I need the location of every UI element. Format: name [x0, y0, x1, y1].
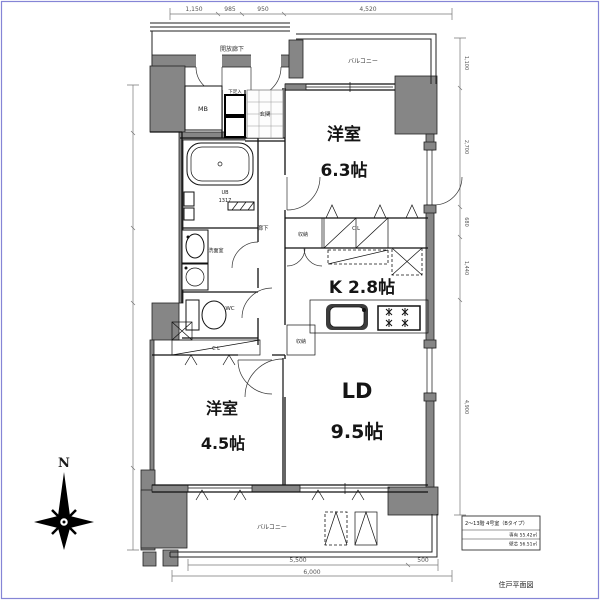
- dimension-line-bottom: 5,500 500 6,000: [172, 557, 452, 582]
- dim-right-4: 1,440: [463, 261, 469, 275]
- dim-top-2: 985: [224, 6, 236, 13]
- kitchen-label: K 2.8帖: [329, 277, 395, 298]
- storage-top-label: 収納: [298, 231, 308, 238]
- entry-door-gap: [251, 54, 281, 68]
- column-top-right: [395, 76, 437, 134]
- window-cap-1: [424, 142, 436, 150]
- window-cap-4: [424, 393, 436, 401]
- hallway: 廊下: [245, 224, 283, 397]
- bathtub: [187, 143, 253, 185]
- closet-top-label: C L: [352, 226, 360, 232]
- toilet-room: WC: [186, 288, 272, 330]
- block-se: [388, 487, 438, 515]
- room-west-top: 洋室 6.3帖: [287, 124, 418, 218]
- entrance-label: 玄関: [259, 110, 271, 118]
- meter-box-label: MB: [198, 105, 208, 113]
- mb-door-gap: [196, 54, 222, 68]
- west-wall-lower: [150, 340, 154, 470]
- compass-north-label: N: [58, 456, 70, 471]
- east-wall-b: [426, 205, 434, 348]
- stove: [378, 306, 420, 330]
- living-dining: LD 9.5帖 収納: [287, 325, 383, 443]
- column-corridor-balcony: [289, 40, 303, 78]
- dim-bottom-1: 5,500: [289, 557, 306, 564]
- hallway-label: 廊下: [257, 224, 269, 232]
- unit-bath-label-1: UB: [221, 190, 229, 196]
- dimension-line-right: 1,100 2,700 680 1,440 4,900: [454, 38, 469, 515]
- room-west-bottom-name: 洋室: [206, 399, 238, 418]
- dim-right-3: 680: [463, 217, 469, 227]
- window-cap-2: [424, 205, 436, 213]
- dim-right-2: 2,700: [463, 140, 469, 154]
- kitchen: K 2.8帖: [310, 248, 428, 333]
- closet-strip: 収納 C L: [285, 218, 388, 266]
- entrance-area: MB 下足入 玄関: [185, 86, 283, 138]
- room-west-bottom-size: 4.5帖: [201, 434, 245, 453]
- dim-right-5: 4,900: [463, 400, 469, 414]
- dim-top-4: 4,520: [359, 6, 376, 13]
- post-1: [143, 552, 156, 566]
- page-border: [2, 2, 599, 599]
- shoe-cabinet-label: 下足入: [228, 89, 242, 95]
- dim-bottom-total: 6,000: [303, 569, 320, 576]
- balcony-bottom-label: バルコニー: [257, 524, 287, 531]
- floor-plan-svg: 1,150 985 950 4,520 5,500 500 6,000 1,10…: [0, 0, 600, 600]
- toilet-label: WC: [225, 306, 234, 312]
- dim-right-1: 1,100: [463, 56, 469, 70]
- storage-mid-label: 収納: [296, 338, 306, 345]
- ld-name: LD: [342, 379, 373, 403]
- info-box-line2: 専有 55.42㎡: [509, 532, 537, 539]
- bathroom: UB 1317: [184, 143, 254, 220]
- toilet-bowl: [202, 301, 226, 329]
- shoe-cabinet-upper: [225, 95, 245, 115]
- balcony-top-label: バルコニー: [348, 58, 378, 65]
- ac-unit-space-2: [355, 512, 377, 545]
- info-box-line1: 2〜13階 4号室（Bタイプ）: [465, 520, 528, 527]
- ld-size: 9.5帖: [331, 420, 384, 443]
- shoe-cabinet-lower: [225, 117, 245, 137]
- info-box: 2〜13階 4号室（Bタイプ） 専有 55.42㎡ 壁芯 56.51㎡: [462, 516, 540, 550]
- compass-star: [34, 472, 94, 550]
- washroom: 洗面室: [182, 230, 258, 290]
- info-box-line3: 壁芯 56.51㎡: [509, 541, 537, 548]
- block-sw: [141, 490, 187, 548]
- ac-unit-space-1: [325, 512, 347, 545]
- room-west-top-size: 6.3帖: [320, 160, 367, 181]
- south-wall-a: [152, 485, 188, 492]
- dim-top-1: 1,150: [185, 6, 202, 13]
- dimension-line-top: 1,150 985 950 4,520: [170, 6, 452, 20]
- closet-bottom-label: C L: [212, 346, 220, 352]
- south-wall-b: [252, 485, 300, 492]
- compass: N: [34, 456, 94, 550]
- room-west-top-name: 洋室: [327, 124, 361, 145]
- window-cap-3: [424, 340, 436, 348]
- column-top-left: [150, 66, 185, 132]
- west-mid-block: [152, 303, 179, 340]
- open-corridor-label: 開放廊下: [220, 45, 244, 53]
- bath-door: [228, 202, 254, 210]
- washroom-label: 洗面室: [208, 247, 223, 254]
- east-wall-c: [426, 393, 434, 487]
- floor-plan-image: 1,150 985 950 4,520 5,500 500 6,000 1,10…: [0, 0, 600, 600]
- dimension-line-left: [127, 85, 139, 550]
- room-west-bottom: 洋室 4.5帖 C L: [172, 322, 272, 453]
- caption: 住戸平面図: [499, 580, 534, 589]
- dim-top-3: 950: [257, 6, 269, 13]
- dim-bottom-2: 500: [417, 557, 429, 564]
